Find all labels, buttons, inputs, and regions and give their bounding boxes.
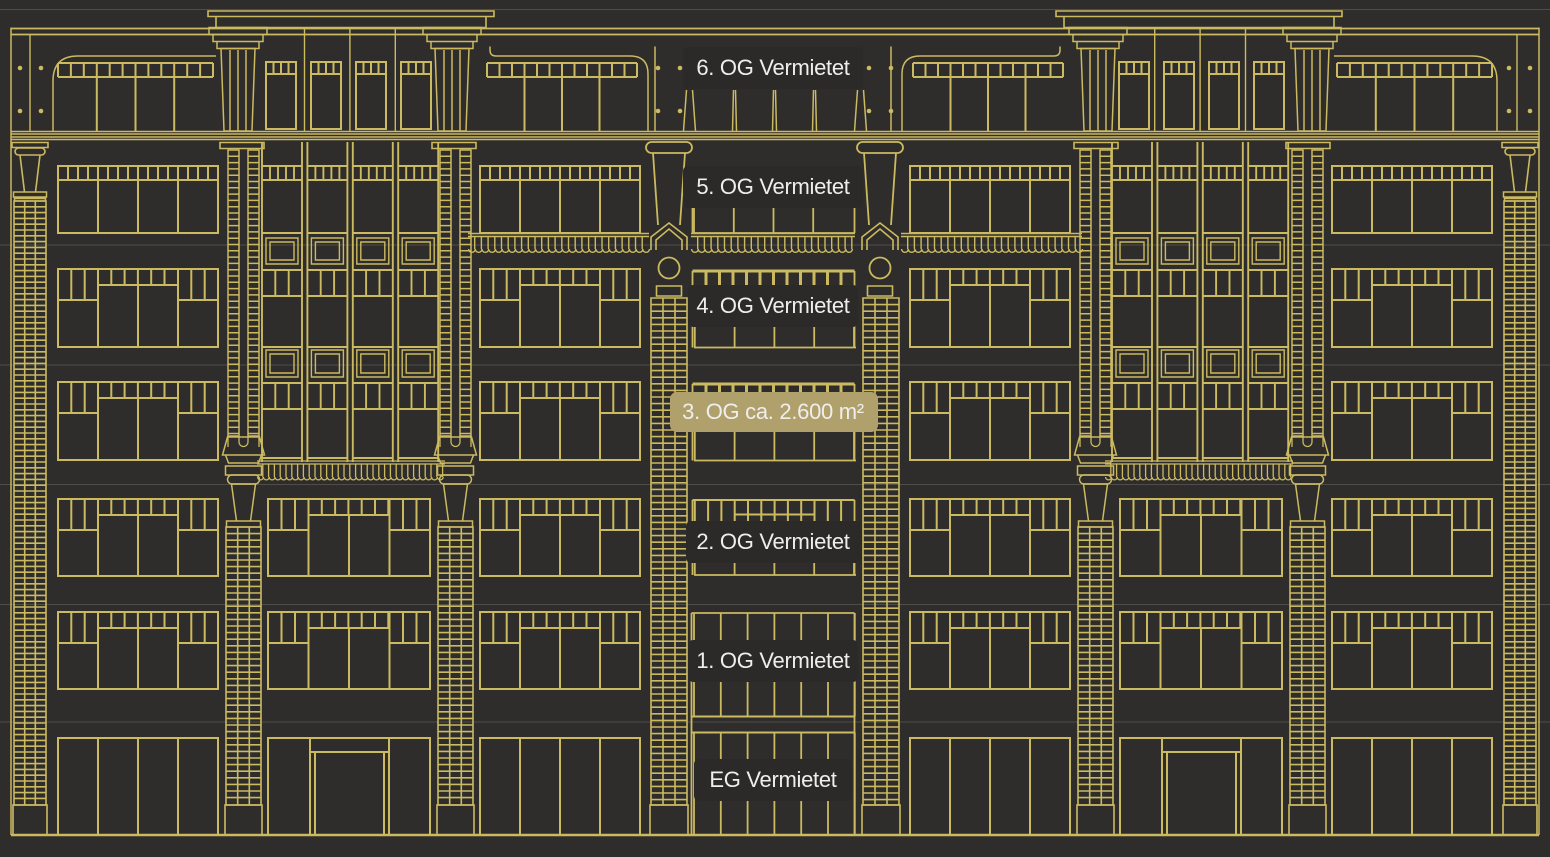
svg-text:5. OG Vermietet: 5. OG Vermietet [696,174,849,199]
svg-text:1. OG Vermietet: 1. OG Vermietet [696,648,849,673]
svg-text:2. OG Vermietet: 2. OG Vermietet [696,529,849,554]
svg-text:4. OG Vermietet: 4. OG Vermietet [696,293,849,318]
svg-text:EG Vermietet: EG Vermietet [709,767,836,792]
svg-text:3. OG ca. 2.600 m²: 3. OG ca. 2.600 m² [682,399,864,424]
svg-text:6. OG Vermietet: 6. OG Vermietet [696,55,849,80]
